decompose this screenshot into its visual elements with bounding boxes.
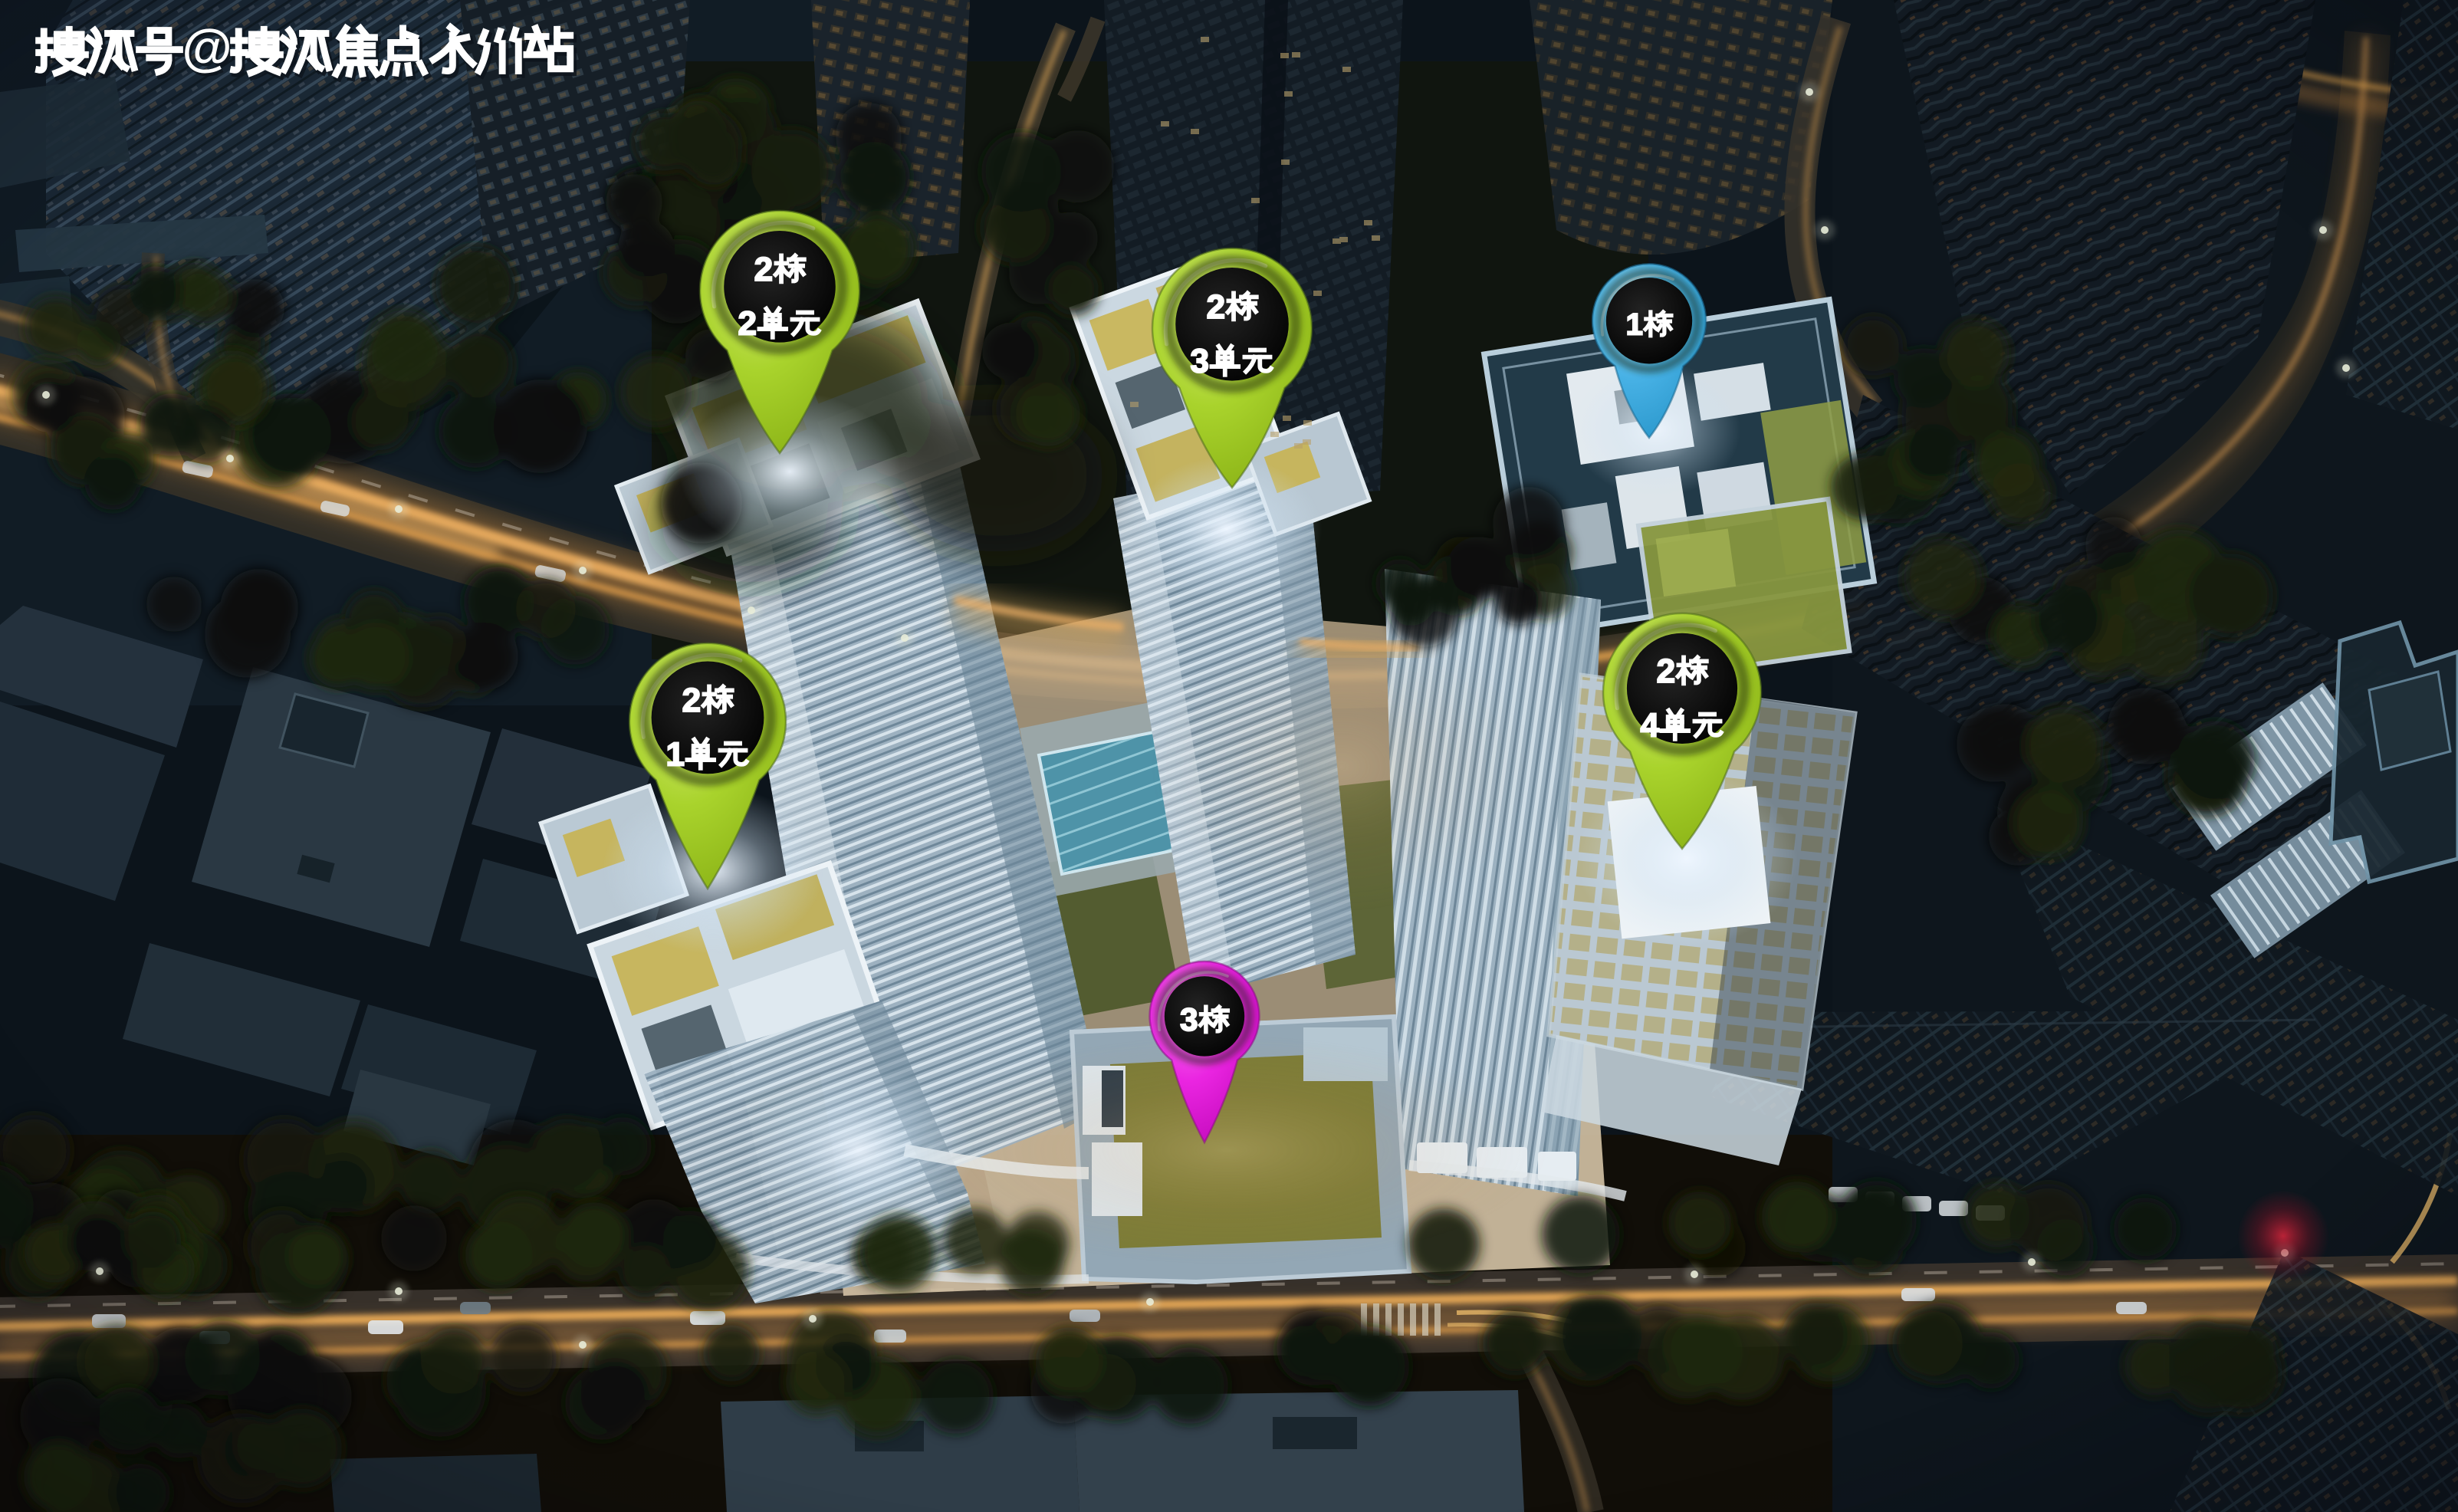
svg-text:2: 2 [738, 305, 757, 343]
svg-text:2: 2 [1207, 288, 1225, 326]
svg-text:@: @ [182, 19, 232, 77]
svg-text:3: 3 [1191, 343, 1209, 380]
svg-text:2: 2 [682, 682, 701, 719]
svg-text:2: 2 [1657, 652, 1675, 690]
svg-text:1: 1 [666, 736, 685, 774]
svg-text:1: 1 [1626, 307, 1643, 341]
svg-text:3: 3 [1180, 1001, 1198, 1037]
svg-text:2: 2 [754, 251, 773, 288]
svg-text:4: 4 [1641, 707, 1660, 744]
